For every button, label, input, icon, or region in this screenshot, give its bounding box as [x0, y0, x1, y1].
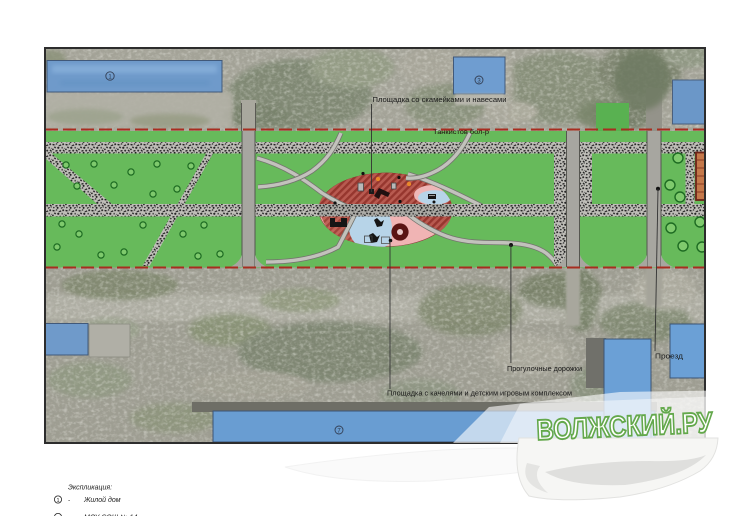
- svg-text:Площадка со скамейками и навес: Площадка со скамейками и навесами: [373, 96, 507, 104]
- svg-text:Площадка с качелями и детским: Площадка с качелями и детским игровым ко…: [387, 391, 572, 398]
- svg-text:Жилой дом: Жилой дом: [83, 496, 121, 504]
- svg-text:Экспликация:: Экспликация:: [68, 485, 112, 492]
- svg-text:Прогулочные дорожки: Прогулочные дорожки: [507, 366, 582, 373]
- svg-text:1: 1: [56, 498, 59, 504]
- svg-text:Танкистов бол-р: Танкистов бол-р: [433, 128, 489, 136]
- svg-text:Проезд: Проезд: [655, 354, 683, 361]
- svg-text:-: -: [68, 497, 70, 504]
